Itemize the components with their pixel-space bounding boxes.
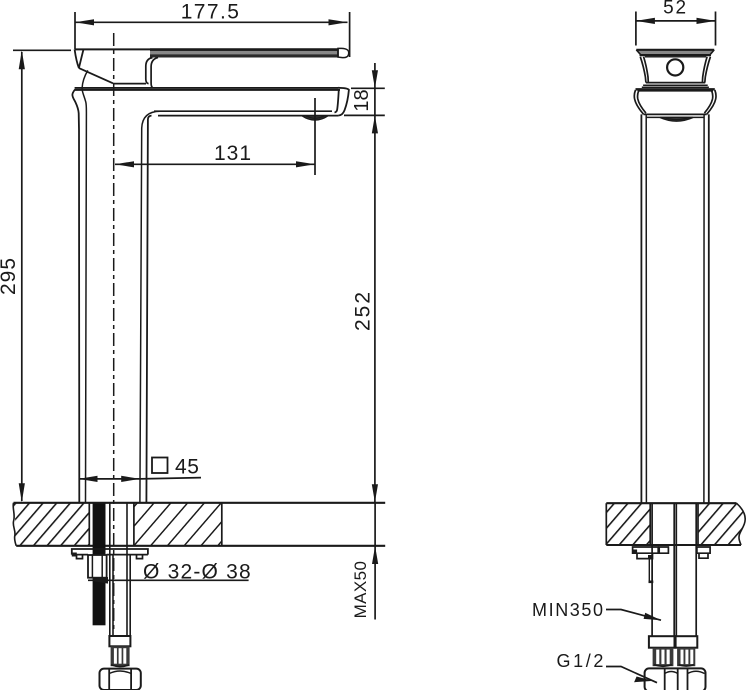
svg-text:177.5: 177.5 bbox=[181, 1, 241, 24]
svg-text:295: 295 bbox=[0, 257, 20, 295]
svg-text:131: 131 bbox=[214, 142, 252, 165]
svg-text:45: 45 bbox=[175, 456, 200, 479]
svg-text:G1/2: G1/2 bbox=[557, 651, 606, 671]
svg-text:18: 18 bbox=[351, 89, 373, 111]
svg-text:52: 52 bbox=[663, 0, 688, 19]
svg-text:252: 252 bbox=[352, 290, 375, 331]
svg-text:MIN350: MIN350 bbox=[532, 600, 605, 620]
svg-text:MAX50: MAX50 bbox=[351, 561, 370, 619]
